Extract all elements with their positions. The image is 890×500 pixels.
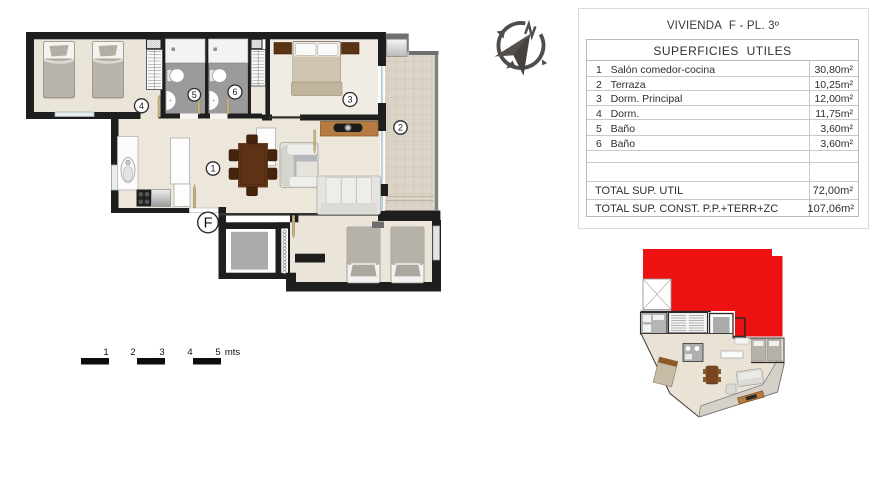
svg-text:4: 4 [187, 347, 192, 358]
svg-text:5: 5 [192, 90, 197, 100]
svg-text:5: 5 [215, 347, 220, 358]
svg-text:1: 1 [210, 164, 215, 174]
svg-text:3: 3 [159, 347, 164, 358]
svg-text:2: 2 [130, 347, 135, 358]
svg-text:2: 2 [398, 123, 403, 133]
svg-text:1: 1 [103, 347, 108, 358]
svg-text:mts: mts [225, 347, 241, 358]
svg-text:4: 4 [139, 101, 144, 111]
svg-text:3: 3 [347, 95, 352, 105]
svg-text:6: 6 [232, 87, 237, 97]
svg-text:F: F [204, 216, 213, 232]
